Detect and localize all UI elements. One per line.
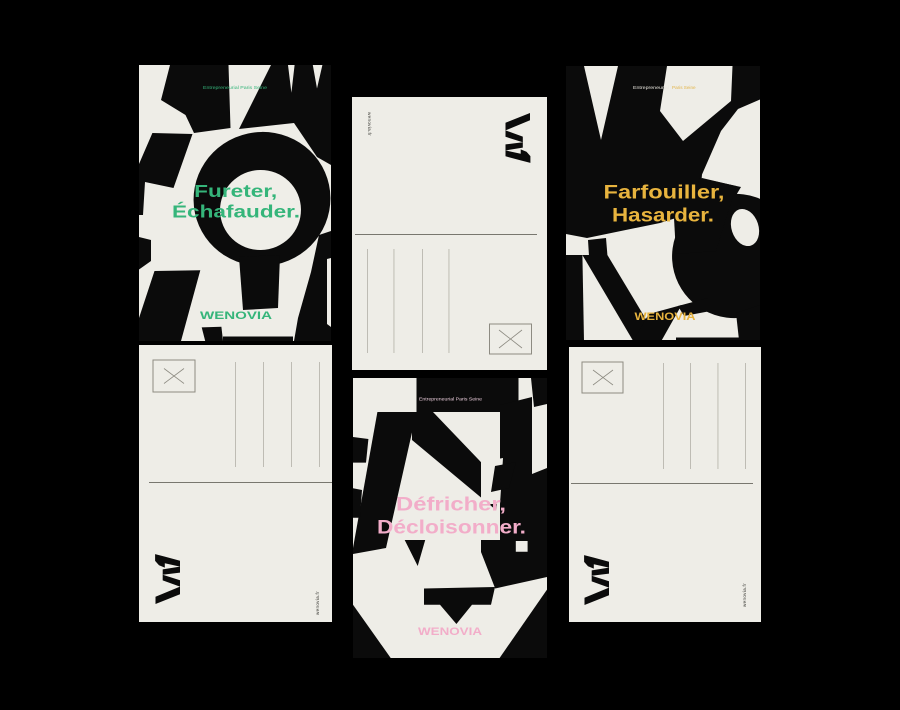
svg-text:WENOVIA: WENOVIA bbox=[635, 311, 696, 323]
svg-text:Entrepreneurial Paris Seine: Entrepreneurial Paris Seine bbox=[203, 85, 267, 91]
svg-text:Fureter,: Fureter, bbox=[194, 181, 277, 201]
svg-text:Échafauder.: Échafauder. bbox=[172, 201, 300, 222]
svg-text:Défricher,: Défricher, bbox=[396, 493, 506, 515]
svg-text:Farfouiller,: Farfouiller, bbox=[604, 183, 725, 204]
svg-text:Entrepreneurial Paris Seine: Entrepreneurial Paris Seine bbox=[419, 397, 482, 403]
svg-text:WENOVIA: WENOVIA bbox=[200, 310, 272, 322]
svg-text:Paris Seine: Paris Seine bbox=[672, 85, 696, 91]
svg-text:wenovia.fr: wenovia.fr bbox=[742, 583, 747, 607]
svg-text:Hasarder.: Hasarder. bbox=[612, 206, 714, 227]
svg-text:Décloisonner.: Décloisonner. bbox=[377, 517, 526, 539]
svg-text:WENOVIA: WENOVIA bbox=[418, 626, 482, 638]
svg-text:wenovia.fr: wenovia.fr bbox=[315, 591, 320, 615]
svg-text:Entrepreneurial: Entrepreneurial bbox=[633, 85, 669, 91]
svg-text:wenovia.fr: wenovia.fr bbox=[367, 112, 372, 136]
